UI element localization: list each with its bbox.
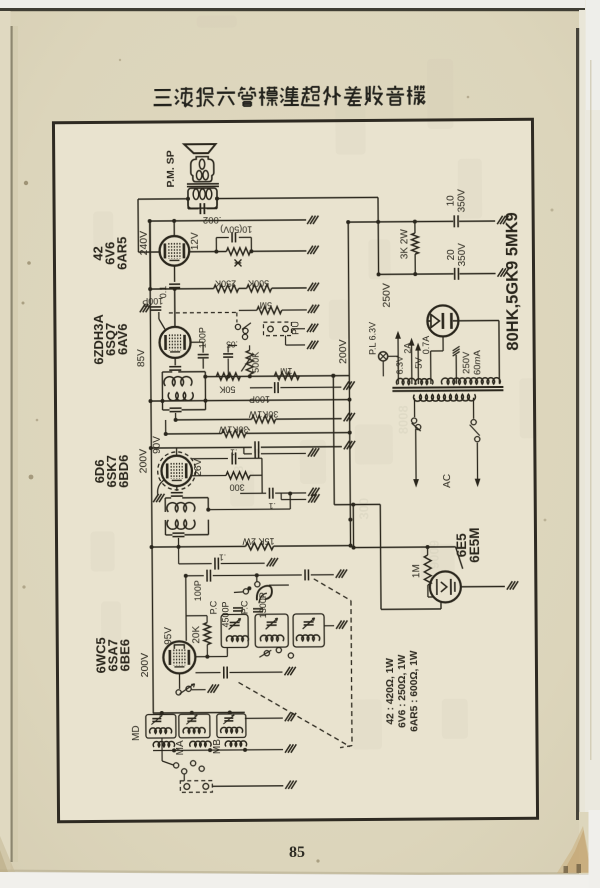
svg-text:250K: 250K [215,278,236,288]
svg-text:P.M. SP: P.M. SP [165,150,177,187]
svg-text:15K 2W: 15K 2W [242,536,275,546]
svg-text:500K: 500K [248,278,269,288]
svg-text:85V: 85V [136,349,147,367]
svg-text:P.C: P.C [208,600,218,614]
svg-text:100P: 100P [193,580,203,601]
svg-text:6D66SK76BD6: 6D66SK76BD6 [92,455,131,489]
svg-text:1M: 1M [280,366,293,376]
svg-text:300: 300 [230,482,245,492]
svg-text:95V: 95V [163,627,174,645]
svg-text:5V: 5V [414,357,425,369]
svg-text:2A: 2A [403,343,413,354]
svg-text:250V: 250V [381,283,393,308]
svg-text:10(50V): 10(50V) [220,224,252,234]
svg-text:85: 85 [289,844,305,861]
svg-text:AC: AC [442,474,453,488]
svg-text:300: 300 [356,498,371,520]
svg-text:100P: 100P [142,296,163,306]
svg-text:5M: 5M [259,300,272,310]
svg-text:MB: MB [212,739,223,754]
svg-text:30K1W: 30K1W [218,424,248,434]
svg-text:P.L 6.3V: P.L 6.3V [367,322,377,355]
svg-text:42 : 420Ω, 1W6V6 : 250Ω, 1W6AR: 42 : 420Ω, 1W6V6 : 250Ω, 1W6AR5 : 600Ω, … [385,650,421,732]
svg-text:26V: 26V [193,458,204,476]
svg-text:250V60mA: 250V60mA [461,350,483,376]
svg-text:3K 2W: 3K 2W [399,229,410,260]
svg-text:.002: .002 [203,214,222,225]
svg-text:6.3V: 6.3V [395,356,405,375]
svg-text:.05: .05 [226,339,238,349]
svg-text:20K: 20K [191,625,202,643]
svg-text:0.7A: 0.7A [421,336,431,355]
svg-text:90V: 90V [152,436,163,454]
svg-text:MA: MA [175,740,186,755]
svg-text:100P: 100P [249,394,270,404]
svg-text:80HK,5GK9 5MK9: 80HK,5GK9 5MK9 [503,212,522,351]
svg-text:50K: 50K [219,384,235,394]
svg-text:200V: 200V [139,653,151,678]
svg-text:12V: 12V [190,232,201,250]
svg-text:9009: 9009 [427,540,442,569]
svg-text:500K: 500K [251,352,261,373]
svg-text:P.U: P.U [290,321,300,335]
svg-text:.1: .1 [230,447,237,457]
svg-text:MD: MD [131,725,142,741]
svg-text:240V: 240V [138,231,150,256]
svg-text:30K1W: 30K1W [248,409,278,419]
svg-text:.1: .1 [219,553,226,563]
svg-text:1M: 1M [411,564,422,578]
svg-text:200V: 200V [337,339,349,364]
svg-text:8008: 8008 [396,405,411,434]
svg-text:6WC56SA76BE6: 6WC56SA76BE6 [93,637,132,673]
svg-text:200V: 200V [137,449,149,474]
